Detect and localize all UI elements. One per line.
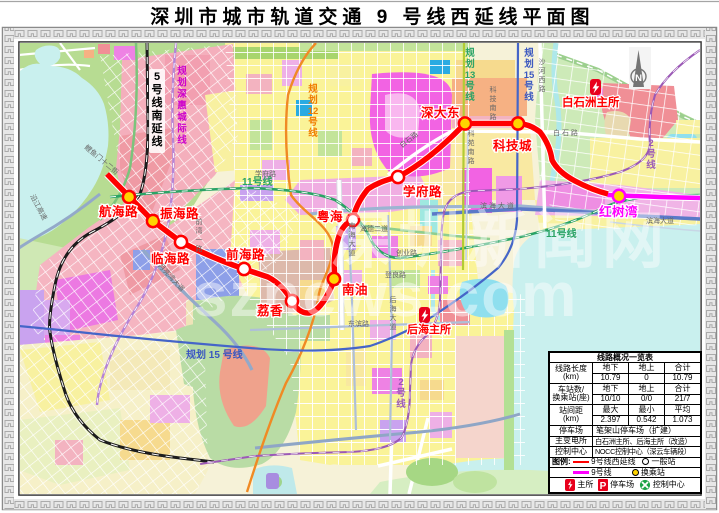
svg-text:P: P — [600, 481, 607, 491]
svg-text:规划深惠城际线: 规划深惠城际线 — [177, 65, 187, 146]
svg-text:前海路: 前海路 — [226, 247, 265, 262]
svg-text:登良路: 登良路 — [385, 270, 406, 279]
svg-text:学府路: 学府路 — [255, 169, 276, 178]
svg-text:创业路: 创业路 — [396, 248, 417, 257]
svg-text:学府路: 学府路 — [403, 184, 442, 199]
svg-text:荔香: 荔香 — [256, 303, 283, 318]
svg-text:东滨路: 东滨路 — [348, 319, 369, 328]
svg-text:粤海: 粤海 — [317, 209, 343, 224]
svg-text:规划12号线: 规划12号线 — [308, 83, 319, 139]
svg-text:临海路: 临海路 — [151, 251, 190, 266]
svg-text:航海路: 航海路 — [99, 204, 138, 219]
svg-text:白 石 路: 白 石 路 — [553, 128, 578, 137]
svg-text:红树湾: 红树湾 — [599, 204, 638, 219]
svg-text:白石洲主所: 白石洲主所 — [562, 95, 620, 109]
svg-text:N: N — [635, 73, 642, 84]
svg-text:11号线: 11号线 — [546, 227, 577, 240]
svg-text:规划15号线: 规划15号线 — [524, 47, 535, 103]
svg-text:规划13号线: 规划13号线 — [465, 47, 476, 103]
svg-text:南油: 南油 — [342, 282, 368, 297]
svg-text:后海主所: 后海主所 — [407, 322, 451, 336]
svg-text:科技城: 科技城 — [493, 138, 532, 153]
svg-text:深大东: 深大东 — [421, 105, 460, 120]
svg-text:滨 海 大 道: 滨 海 大 道 — [480, 201, 514, 210]
svg-text:滨海大道: 滨海大道 — [646, 216, 674, 225]
svg-text:振海路: 振海路 — [160, 206, 199, 221]
svg-text:规划 15 号线: 规划 15 号线 — [186, 348, 243, 361]
svg-text:海德二道: 海德二道 — [360, 224, 388, 233]
